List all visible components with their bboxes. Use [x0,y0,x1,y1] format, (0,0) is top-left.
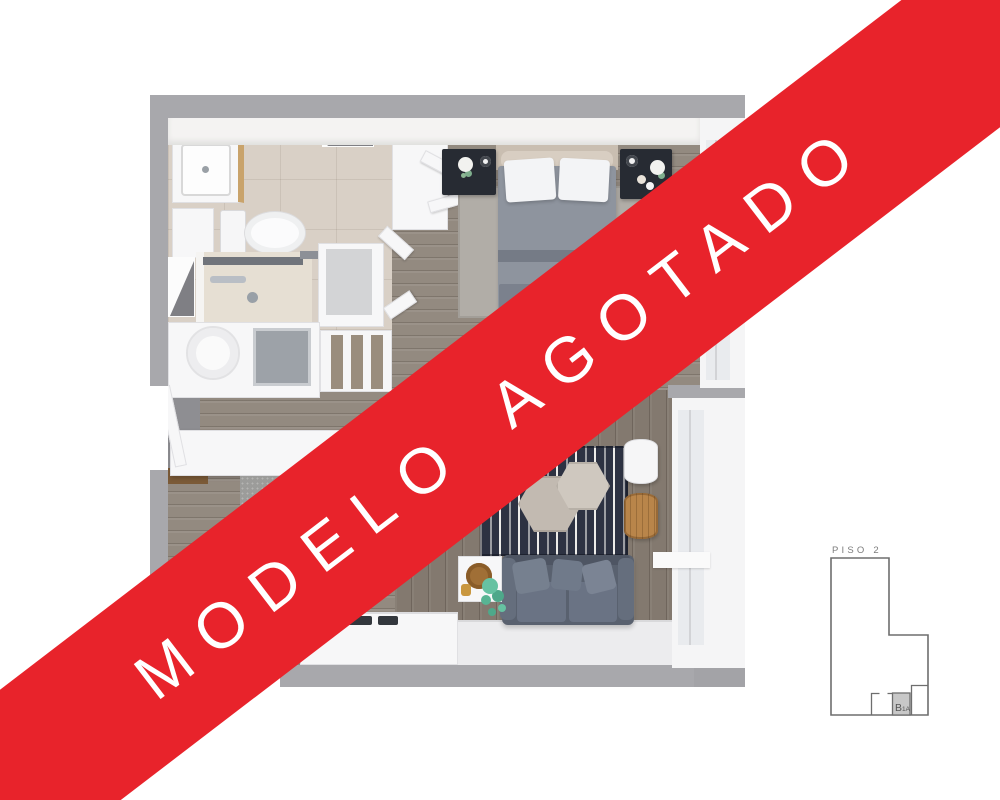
flowers-left [458,157,473,172]
shower-fixture-bar [210,276,246,283]
sink-faucet [202,166,209,173]
closet-slat [331,335,343,389]
cooktop-burner [378,616,398,625]
laundry-appliance [253,328,311,386]
window-glass-lower [678,410,704,645]
closet-slat [371,335,383,389]
floor-label: PISO 2 [832,545,882,556]
cup-right [626,155,638,167]
floor-location-miniplan: PISO 2 B1A [818,536,942,726]
closet-slat [351,335,363,389]
bathroom-shelf [172,208,214,258]
toilet-bowl [244,211,306,255]
wall-bottom [280,665,745,687]
window-wall-lower [672,398,745,668]
sofa-back-pillow [551,559,584,592]
wardrobe-frosted-door [326,249,372,315]
bed-pillow-right [558,158,610,203]
sofa-back-pillow [511,557,550,594]
toilet-tank [220,210,246,256]
slatted-closet [320,330,392,392]
sold-out-floorplan-page: MODELO AGOTADO PISO 2 B1A [0,0,1000,800]
side-table-oval [624,439,658,484]
shower-glass-panel [203,257,303,265]
brass-cup [461,584,471,596]
balcony-door-sill [653,552,710,568]
door-leaf-shadow [170,261,194,316]
bed-pillow-left [504,157,557,202]
shower-drain [247,292,258,303]
wall-top-inner-face [168,118,700,145]
balcony-floor [430,620,692,667]
sofa-armrest-right [618,558,634,620]
wall-left [150,95,168,575]
bathroom-door-swing [168,257,195,317]
floor-outline [831,558,928,715]
window-mullion [689,410,691,645]
wardrobe-frosted [318,243,384,327]
washing-machine [186,326,240,380]
plate-right [637,175,646,184]
flowers-right [650,160,665,175]
wall-top [150,95,745,118]
cup-left [480,156,491,167]
stool-wood-barrel [624,493,658,539]
entry-door-opening [150,386,168,470]
plant-leaves [482,578,498,594]
